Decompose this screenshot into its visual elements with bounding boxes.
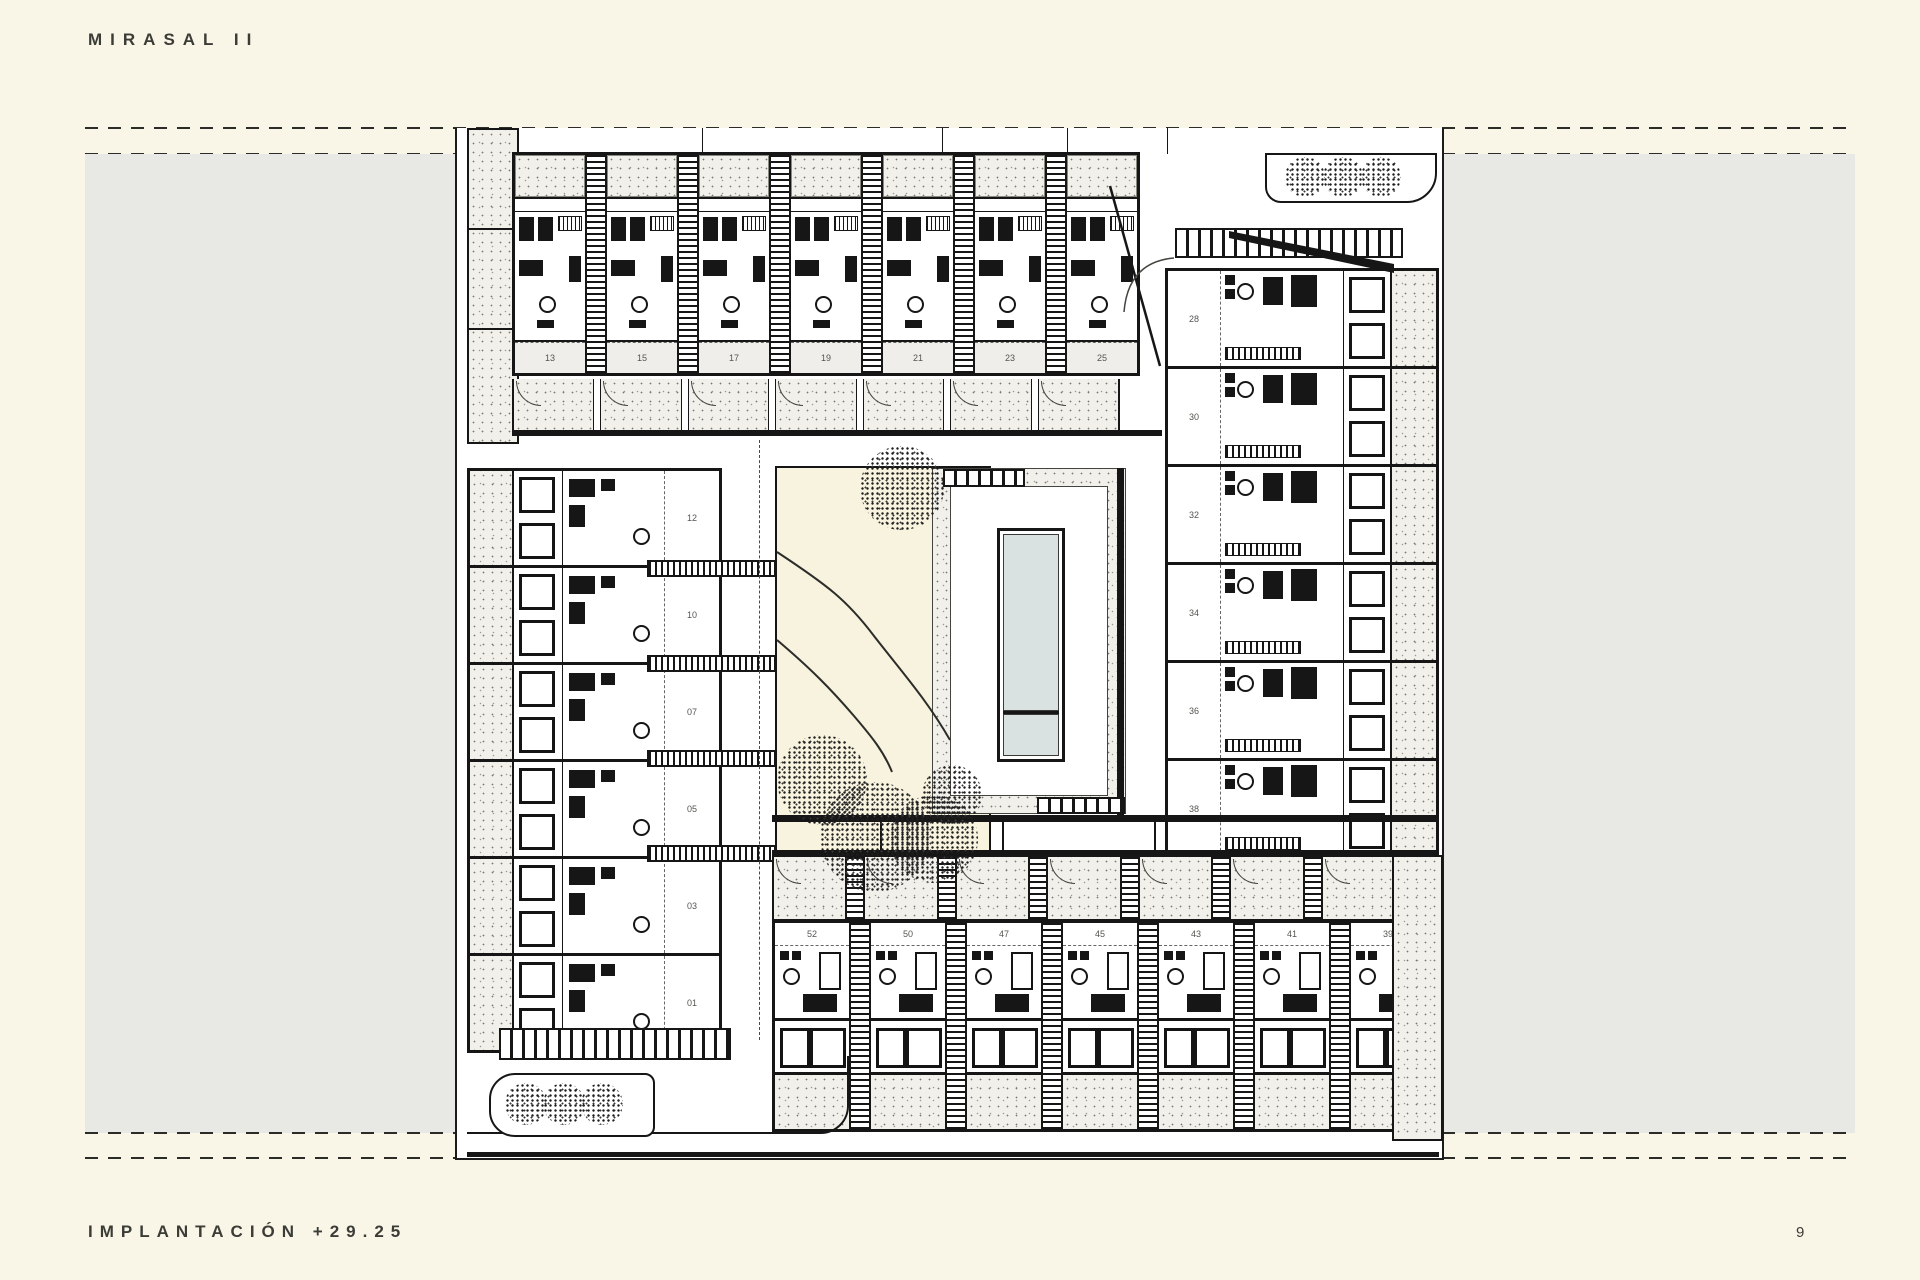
linework-overlay xyxy=(457,128,1442,1158)
site-plan-sheet: 13151719212325 121007050301 283032343638… xyxy=(455,128,1444,1160)
drawing-page: { "page": { "title": "MIRASAL II", "foot… xyxy=(0,0,1920,1280)
drawing-caption: IMPLANTACIÓN +29.25 xyxy=(88,1222,407,1242)
page-number: 9 xyxy=(1796,1224,1804,1241)
page-title: MIRASAL II xyxy=(88,30,259,50)
